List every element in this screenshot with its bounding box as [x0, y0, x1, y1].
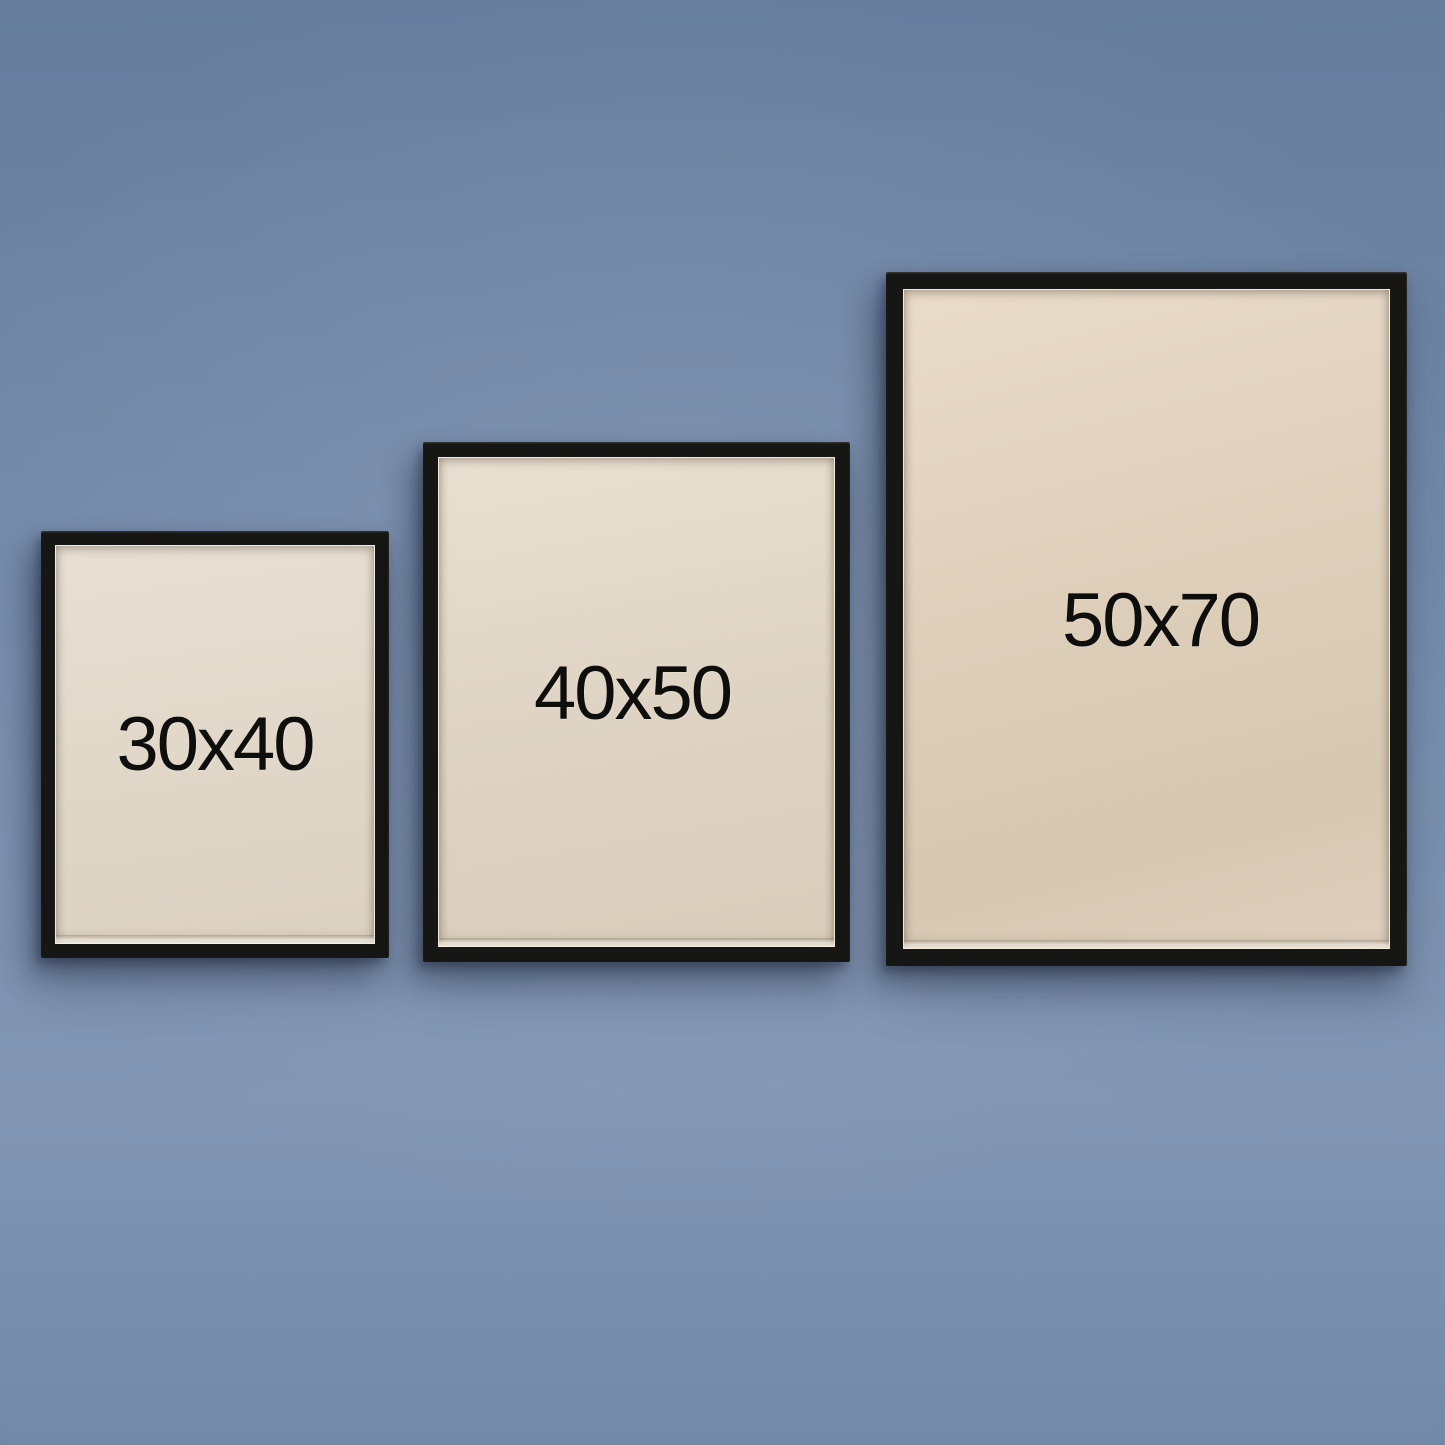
picture-frame-40x50: 40x50	[423, 442, 850, 962]
frame-size-label-50x70: 50x70	[1062, 583, 1259, 659]
picture-frame-30x40: 30x40	[41, 531, 389, 958]
frame-paper-50x70: 50x70	[903, 289, 1390, 949]
frame-size-label-40x50: 40x50	[534, 656, 731, 732]
frame-paper-30x40: 30x40	[55, 545, 375, 944]
picture-frame-50x70: 50x70	[886, 272, 1407, 966]
wall-background: 30x40 40x50 50x70	[0, 0, 1445, 1445]
frame-paper-40x50: 40x50	[438, 457, 835, 947]
frame-size-label-30x40: 30x40	[116, 707, 313, 783]
